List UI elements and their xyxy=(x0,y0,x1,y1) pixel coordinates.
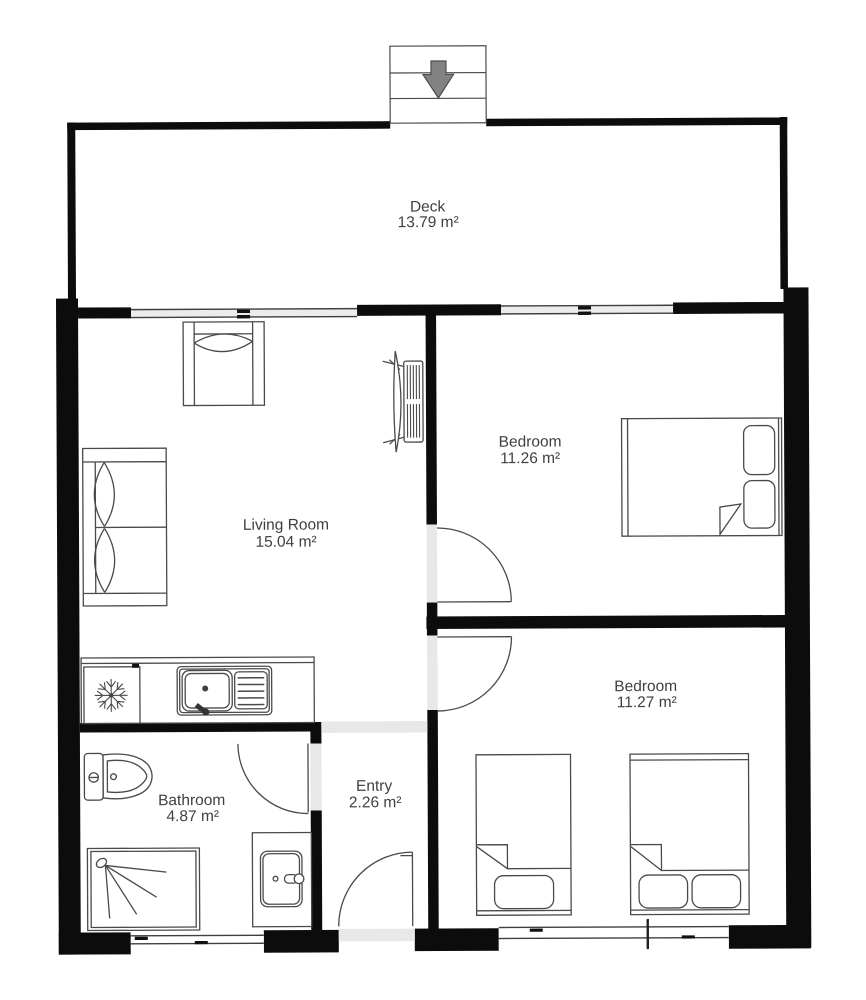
svg-text:11.27 m²: 11.27 m² xyxy=(617,694,677,711)
svg-text:11.26 m²: 11.26 m² xyxy=(500,450,560,467)
svg-text:4.87 m²: 4.87 m² xyxy=(166,808,219,825)
svg-text:15.04 m²: 15.04 m² xyxy=(255,534,316,551)
svg-text:Living Room: Living Room xyxy=(243,516,329,533)
svg-text:Entry: Entry xyxy=(356,778,393,795)
svg-text:Bedroom: Bedroom xyxy=(499,433,562,450)
svg-text:Bedroom: Bedroom xyxy=(614,678,677,695)
svg-text:2.26 m²: 2.26 m² xyxy=(349,794,402,811)
svg-text:Bathroom: Bathroom xyxy=(158,792,225,809)
svg-text:13.79 m²: 13.79 m² xyxy=(398,214,459,231)
